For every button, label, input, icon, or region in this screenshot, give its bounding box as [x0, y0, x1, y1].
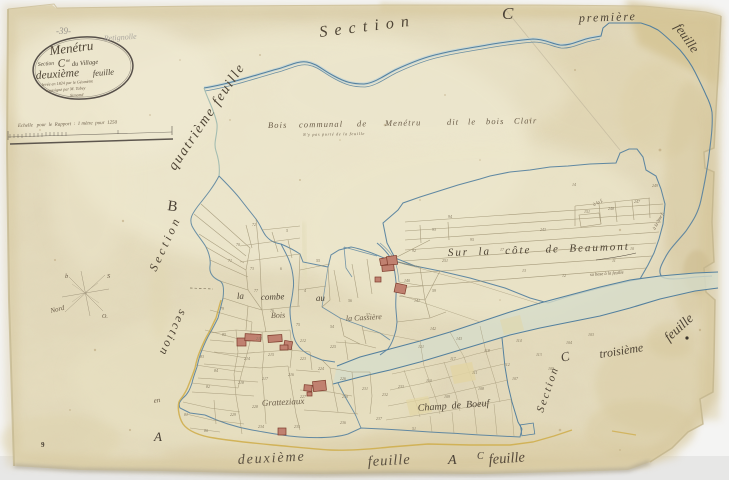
svg-text:11: 11 — [612, 258, 616, 263]
svg-text:117: 117 — [450, 356, 457, 361]
svg-text:214: 214 — [244, 356, 250, 361]
svg-text:95: 95 — [470, 237, 474, 242]
svg-text:94: 94 — [448, 214, 452, 219]
svg-text:73: 73 — [250, 266, 254, 271]
svg-text:103: 103 — [588, 332, 594, 337]
svg-text:229: 229 — [230, 412, 236, 417]
svg-text:C: C — [502, 4, 514, 23]
svg-text:249: 249 — [652, 183, 658, 188]
svg-text:A: A — [447, 453, 457, 468]
svg-text:9: 9 — [41, 441, 45, 449]
svg-text:10: 10 — [630, 246, 634, 251]
svg-text:dit: dit — [447, 117, 459, 127]
svg-text:85: 85 — [222, 332, 226, 337]
svg-text:13: 13 — [522, 268, 526, 273]
svg-text:110: 110 — [426, 378, 432, 383]
svg-text:feuille: feuille — [367, 452, 410, 470]
svg-text:79: 79 — [220, 306, 224, 311]
svg-text:Bois: Bois — [268, 120, 288, 130]
svg-text:C: C — [477, 451, 484, 462]
svg-text:234: 234 — [258, 424, 264, 429]
svg-text:231: 231 — [362, 386, 368, 391]
svg-text:112: 112 — [504, 362, 510, 367]
svg-text:121: 121 — [418, 344, 424, 349]
svg-text:5: 5 — [286, 228, 288, 233]
svg-text:113: 113 — [536, 352, 542, 357]
svg-text:143: 143 — [456, 336, 462, 341]
svg-text:Menétru: Menétru — [384, 117, 422, 128]
svg-text:243: 243 — [540, 227, 546, 232]
svg-text:14: 14 — [572, 182, 576, 187]
svg-text:Simond: Simond — [70, 92, 85, 98]
svg-text:A: A — [153, 429, 162, 444]
svg-text:54: 54 — [330, 324, 334, 329]
svg-text:227: 227 — [300, 394, 307, 399]
svg-text:59: 59 — [432, 288, 436, 293]
svg-text:feuille: feuille — [92, 67, 114, 78]
svg-text:216: 216 — [288, 372, 294, 377]
svg-text:le: le — [468, 116, 477, 126]
svg-text:première: première — [578, 9, 636, 25]
svg-text:235: 235 — [294, 424, 300, 429]
svg-text:105: 105 — [548, 366, 554, 371]
svg-text:56: 56 — [348, 298, 352, 303]
svg-text:232: 232 — [382, 392, 388, 397]
svg-text:6: 6 — [280, 266, 282, 271]
svg-text:-39-: -39- — [56, 26, 71, 36]
svg-text:226: 226 — [340, 376, 346, 381]
svg-text:feuille: feuille — [488, 449, 526, 468]
svg-text:107: 107 — [512, 376, 519, 381]
svg-text:223: 223 — [300, 356, 306, 361]
svg-text:51: 51 — [412, 426, 416, 431]
svg-text:251: 251 — [442, 258, 448, 263]
svg-text:141: 141 — [414, 298, 420, 303]
svg-text:224: 224 — [318, 366, 324, 371]
svg-text:247: 247 — [634, 199, 641, 204]
svg-text:104: 104 — [566, 340, 572, 345]
svg-text:118: 118 — [484, 348, 490, 353]
svg-text:93: 93 — [432, 227, 436, 232]
svg-text:108: 108 — [478, 386, 484, 391]
svg-text:Clair: Clair — [514, 115, 538, 125]
svg-text:ne: ne — [66, 58, 71, 63]
svg-text:230: 230 — [342, 394, 348, 399]
svg-text:142: 142 — [430, 326, 436, 331]
svg-text:80: 80 — [204, 428, 208, 433]
svg-text:82: 82 — [206, 384, 210, 389]
svg-text:213: 213 — [256, 336, 262, 341]
svg-text:de: de — [357, 118, 367, 128]
svg-text:75: 75 — [296, 322, 300, 327]
svg-text:225: 225 — [330, 344, 336, 349]
svg-text:83: 83 — [200, 354, 204, 359]
svg-text:140: 140 — [404, 278, 410, 283]
svg-text:215: 215 — [268, 352, 274, 357]
svg-text:bois: bois — [486, 116, 505, 126]
svg-text:84: 84 — [214, 368, 218, 373]
svg-text:233: 233 — [398, 384, 404, 389]
svg-text:217: 217 — [262, 376, 269, 381]
svg-text:70: 70 — [236, 242, 240, 247]
svg-text:4: 4 — [304, 288, 306, 293]
svg-text:212: 212 — [300, 338, 306, 343]
svg-text:114: 114 — [516, 338, 522, 343]
svg-text:71: 71 — [228, 258, 232, 263]
svg-text:72: 72 — [252, 222, 256, 227]
svg-text:237: 237 — [376, 416, 383, 421]
svg-text:236: 236 — [340, 420, 346, 425]
svg-text:81: 81 — [184, 412, 188, 417]
svg-text:55: 55 — [316, 258, 320, 263]
svg-text:O.: O. — [102, 314, 108, 320]
svg-text:92: 92 — [412, 248, 416, 253]
svg-text:111: 111 — [472, 370, 477, 375]
svg-text:combe: combe — [261, 291, 285, 302]
svg-text:communal: communal — [299, 119, 343, 130]
svg-text:151: 151 — [584, 209, 590, 214]
svg-text:218: 218 — [238, 380, 244, 385]
svg-text:248: 248 — [608, 206, 614, 211]
svg-text:la: la — [237, 291, 245, 301]
svg-text:228: 228 — [252, 404, 258, 409]
svg-text:la Cassière: la Cassière — [346, 312, 383, 323]
svg-text:12: 12 — [562, 273, 566, 278]
svg-text:76: 76 — [270, 308, 274, 313]
svg-text:au: au — [316, 293, 326, 303]
svg-text:109: 109 — [444, 394, 450, 399]
